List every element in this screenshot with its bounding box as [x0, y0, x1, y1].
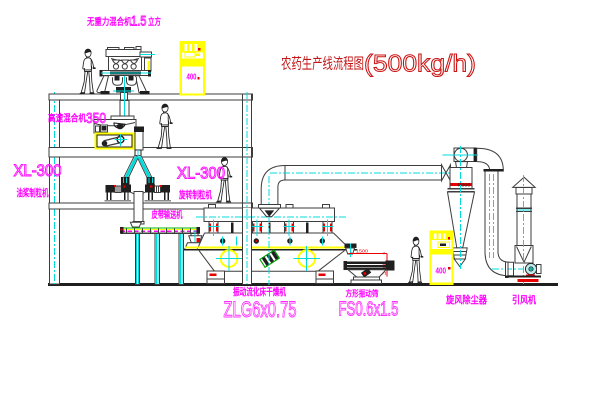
svg-text:无重力混合机: 无重力混合机 [86, 16, 132, 28]
svg-text:350: 350 [86, 111, 106, 127]
svg-text:油桨制粒机: 油桨制粒机 [17, 187, 49, 200]
svg-text:方形振动筛: 方形振动筛 [346, 288, 379, 299]
svg-text:XL-300: XL-300 [14, 161, 62, 180]
svg-text:1500: 1500 [356, 249, 368, 255]
svg-text:(500kg/h): (500kg/h) [364, 51, 476, 78]
svg-text:旋风除尘器: 旋风除尘器 [445, 294, 488, 307]
svg-text:400: 400 [436, 266, 447, 275]
svg-text:立方: 立方 [148, 16, 161, 28]
svg-text:1.5: 1.5 [131, 13, 147, 29]
svg-text:ZLG6x0.75: ZLG6x0.75 [224, 297, 297, 322]
svg-text:XL-300: XL-300 [177, 164, 225, 183]
svg-text:引风机: 引风机 [512, 294, 536, 307]
svg-text:P600: P600 [458, 182, 471, 188]
svg-text:FS0.6x1.5: FS0.6x1.5 [339, 299, 399, 321]
svg-text:皮带输送机: 皮带输送机 [151, 209, 183, 221]
svg-text:400: 400 [187, 72, 197, 81]
svg-text:农药生产线流程图: 农药生产线流程图 [281, 56, 364, 73]
svg-text:高速混合机: 高速混合机 [48, 113, 86, 125]
svg-text:旋转制粒机: 旋转制粒机 [178, 189, 212, 202]
